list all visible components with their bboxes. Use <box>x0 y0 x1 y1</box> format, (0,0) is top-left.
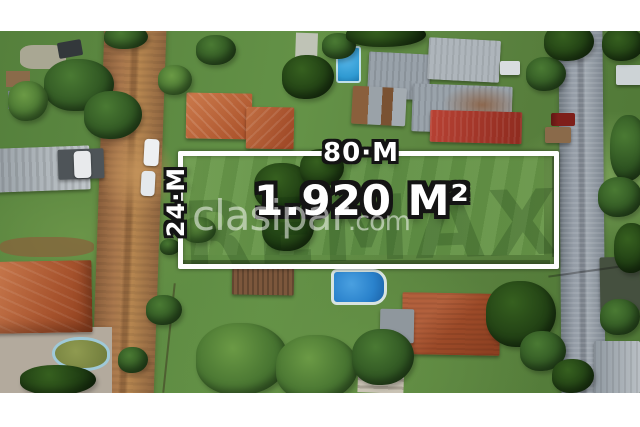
tree-right-edge <box>614 223 640 273</box>
house-small-right-top <box>616 65 640 85</box>
bush-near-road-left <box>160 239 180 255</box>
tin-shed-b <box>427 37 501 83</box>
house-bottom-left-roof <box>0 260 93 334</box>
dark-vehicle-top-left <box>57 39 83 59</box>
tree-left-of-pergola <box>146 295 182 325</box>
red-truck <box>551 113 575 126</box>
tree-bottom-cluster-1 <box>196 323 288 393</box>
house-top-center-roof <box>186 92 253 139</box>
parked-car-silver <box>74 151 92 179</box>
top-white-bar <box>0 0 640 31</box>
tree-top-center <box>282 55 334 99</box>
tree-right-edge-2 <box>600 299 640 335</box>
plot-depth-label: 24·M <box>164 167 188 237</box>
tree-bottom-cluster-2 <box>276 335 358 393</box>
red-metal-roof <box>430 110 523 144</box>
tree-right-roadside-2 <box>598 177 640 217</box>
shed-right-bottom <box>594 341 640 393</box>
bottom-white-bar <box>0 393 640 427</box>
tree-top-edge-4 <box>346 31 426 47</box>
clasipar-watermark-tld: .com <box>348 206 410 237</box>
tree-bottom-left-strip <box>20 365 96 393</box>
clasipar-watermark-name: clasipar <box>192 191 348 240</box>
paved-road <box>558 31 605 393</box>
tree-right-roadside-1 <box>610 115 640 181</box>
car-on-road-1 <box>143 139 159 167</box>
shed-small-white <box>500 61 520 75</box>
tree-roadside-top <box>158 65 192 95</box>
tree-top-left-2 <box>8 81 48 121</box>
dirt-patch-left <box>0 237 94 257</box>
house-top-center-wing <box>246 107 295 150</box>
listing-image: REMAX 80·M 24·M 1.920 M² clasipar.com <box>0 0 640 427</box>
car-on-road-2 <box>140 171 155 197</box>
shed-brown-roadside <box>545 127 571 143</box>
tree-bottom-cluster-3 <box>352 329 414 385</box>
tree-top-right-corner-2 <box>602 31 640 61</box>
tin-shed-rusty <box>351 86 407 127</box>
tree-top-edge-2 <box>196 35 236 65</box>
clasipar-watermark: clasipar.com <box>192 195 410 237</box>
aerial-photo: REMAX 80·M 24·M 1.920 M² clasipar.com <box>0 31 640 393</box>
plot-frontage-label: 80·M <box>323 140 399 166</box>
